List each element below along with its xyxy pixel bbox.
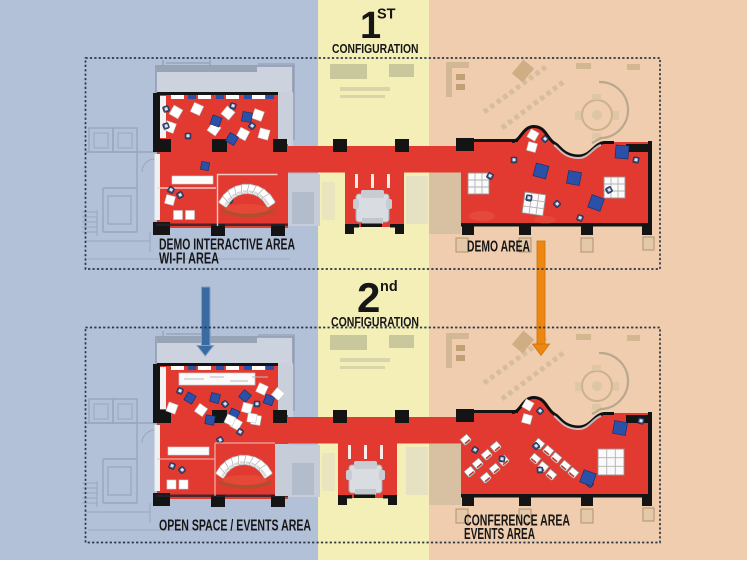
svg-text:DEMO AREA: DEMO AREA xyxy=(467,239,530,256)
svg-text:EVENTS AREA: EVENTS AREA xyxy=(464,526,535,543)
svg-text:WI-FI AREA: WI-FI AREA xyxy=(159,251,219,268)
svg-text:CONFIGURATION: CONFIGURATION xyxy=(332,41,419,56)
svg-text:OPEN SPACE / EVENTS AREA: OPEN SPACE / EVENTS AREA xyxy=(159,518,311,535)
svg-text:nd: nd xyxy=(380,279,398,295)
svg-text:CONFIGURATION: CONFIGURATION xyxy=(331,315,419,330)
svg-text:ST: ST xyxy=(377,7,396,23)
